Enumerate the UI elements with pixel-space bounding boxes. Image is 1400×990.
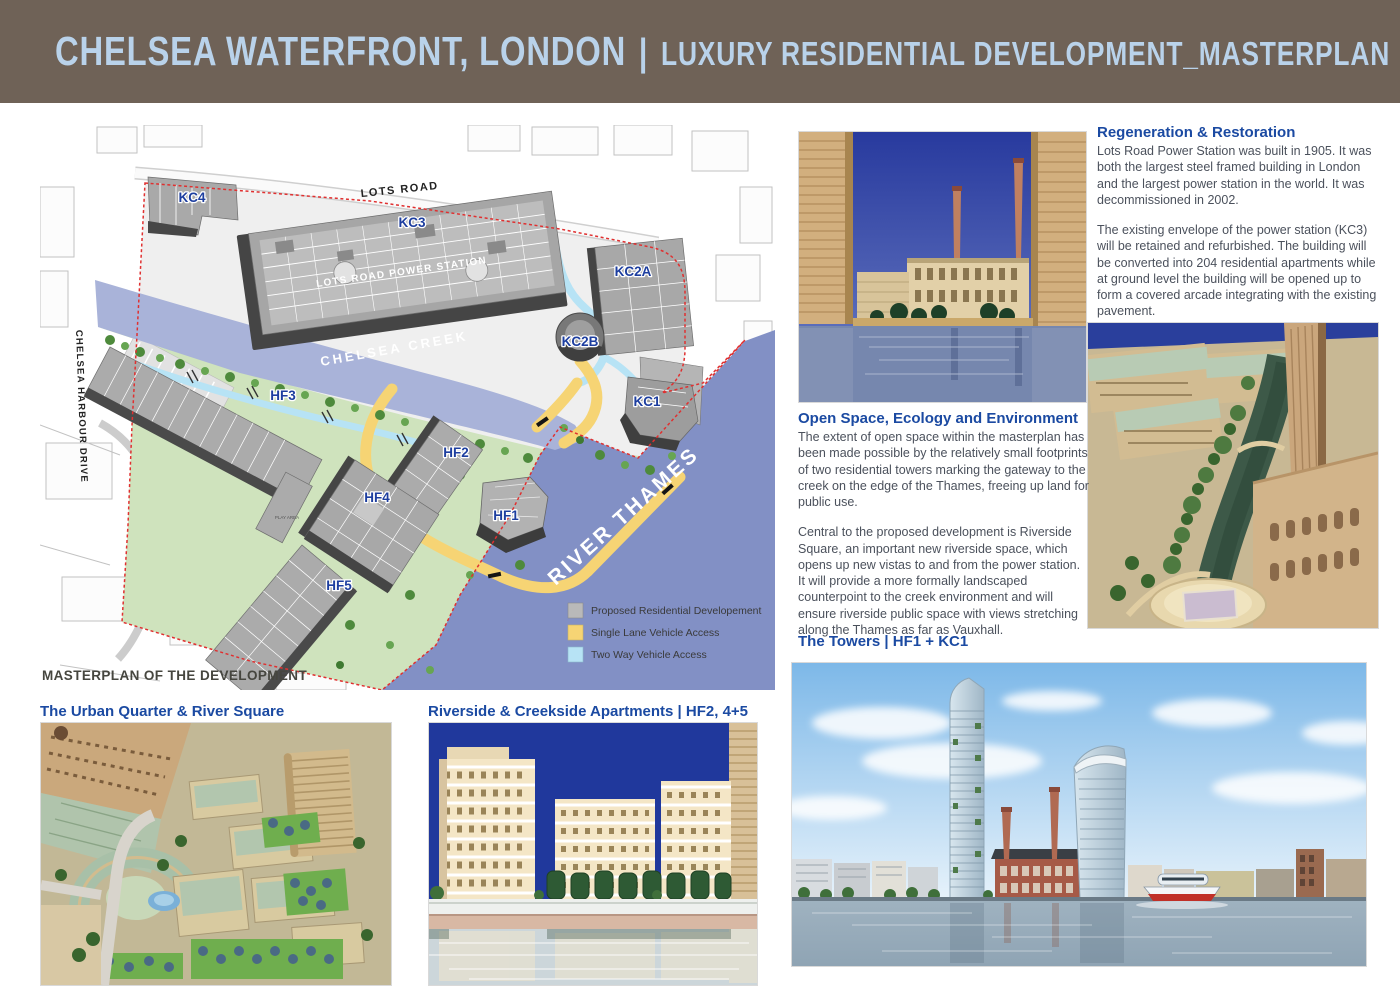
- photo-riverside-model: [428, 722, 758, 986]
- legend-label-residential: Proposed Residential Developement: [591, 605, 762, 617]
- label-kc1: KC1: [633, 394, 660, 409]
- open-space-heading: Open Space, Ecology and Environment: [798, 410, 1090, 427]
- label-kc4: KC4: [178, 190, 205, 205]
- photo-urban-quarter-model: [40, 722, 392, 986]
- label-kc2b: KC2B: [562, 334, 599, 349]
- label-hf3: HF3: [270, 388, 296, 403]
- title-divider: |: [639, 32, 648, 75]
- open-space-para2: Central to the proposed development is R…: [798, 524, 1090, 638]
- urban-quarter-heading: The Urban Quarter & River Square: [40, 703, 284, 720]
- header-bar: CHELSEA WATERFRONT, LONDON | LUXURY RESI…: [0, 0, 1400, 103]
- map-caption: MASTERPLAN OF THE DEVELOPMENT: [42, 668, 307, 683]
- photo-power-station-model: [798, 131, 1087, 403]
- presentation-board: CHELSEA WATERFRONT, LONDON | LUXURY RESI…: [0, 0, 1400, 990]
- label-kc2a: KC2A: [615, 264, 652, 279]
- section-open-space: Open Space, Ecology and Environment The …: [798, 410, 1090, 652]
- regeneration-para2: The existing envelope of the power stati…: [1097, 222, 1382, 320]
- page-title: CHELSEA WATERFRONT, LONDON | LUXURY RESI…: [55, 28, 1390, 75]
- label-kc3: KC3: [398, 215, 425, 230]
- play-area-label: PLAY AREA: [275, 515, 299, 520]
- towers-heading: The Towers | HF1 + KC1: [798, 633, 968, 650]
- label-hf2: HF2: [443, 445, 469, 460]
- legend-label-single-lane: Single Lane Vehicle Access: [591, 627, 719, 639]
- regeneration-heading: Regeneration & Restoration: [1097, 124, 1382, 141]
- riverside-heading: Riverside & Creekside Apartments | HF2, …: [428, 703, 748, 720]
- legend-swatch-single-lane: [568, 625, 583, 640]
- masterplan-map-drawing: LOTS ROAD LOTS ROAD POWER STATION CHELSE…: [40, 125, 775, 690]
- section-regeneration: Regeneration & Restoration Lots Road Pow…: [1097, 124, 1382, 334]
- legend-label-two-way: Two Way Vehicle Access: [591, 649, 707, 661]
- legend-swatch-two-way: [568, 647, 583, 662]
- label-hf1: HF1: [493, 508, 519, 523]
- masterplan-map: LOTS ROAD LOTS ROAD POWER STATION CHELSE…: [40, 125, 775, 690]
- regeneration-para1: Lots Road Power Station was built in 190…: [1097, 143, 1382, 208]
- label-hf5: HF5: [326, 578, 352, 593]
- title-subtitle: LUXURY RESIDENTIAL DEVELOPMENT_MASTERPLA…: [661, 35, 1390, 73]
- photo-creek-model: [1087, 322, 1379, 629]
- title-main: CHELSEA WATERFRONT, LONDON: [55, 28, 626, 75]
- legend-swatch-residential: [568, 603, 583, 618]
- open-space-para1: The extent of open space within the mast…: [798, 429, 1090, 510]
- photo-towers-rendering: [791, 662, 1367, 967]
- label-hf4: HF4: [364, 490, 390, 505]
